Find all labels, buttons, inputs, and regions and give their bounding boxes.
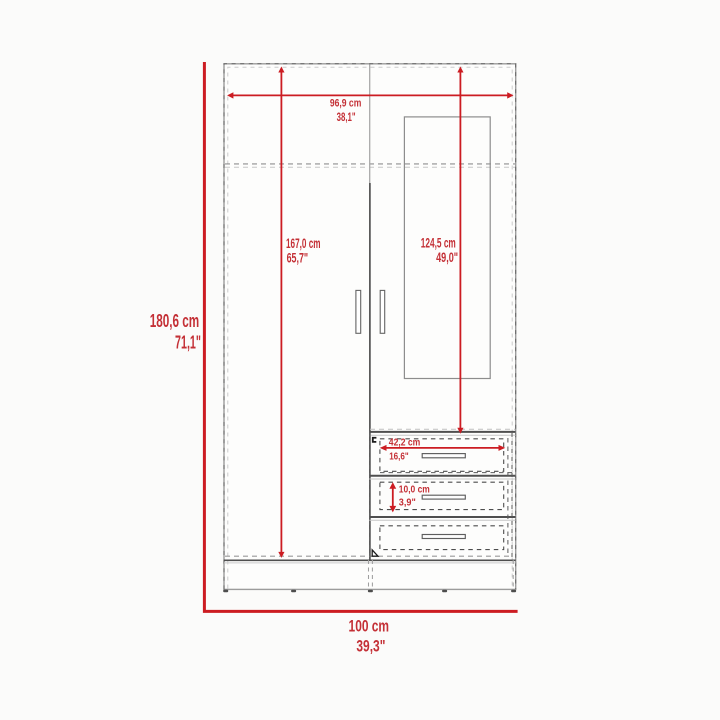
svg-text:96,9 cm: 96,9 cm bbox=[330, 98, 362, 110]
svg-text:16,6": 16,6" bbox=[389, 452, 409, 463]
svg-text:49,0": 49,0" bbox=[436, 250, 458, 265]
svg-text:167,0 cm: 167,0 cm bbox=[286, 236, 321, 251]
svg-text:100 cm: 100 cm bbox=[349, 617, 390, 636]
svg-text:65,7": 65,7" bbox=[287, 250, 309, 265]
svg-text:3,9": 3,9" bbox=[399, 498, 416, 509]
svg-text:10,0 cm: 10,0 cm bbox=[399, 485, 430, 496]
svg-text:38,1": 38,1" bbox=[337, 112, 356, 124]
svg-text:124,5 cm: 124,5 cm bbox=[421, 236, 456, 251]
svg-text:42,2 cm: 42,2 cm bbox=[389, 438, 421, 449]
svg-text:180,6 cm: 180,6 cm bbox=[150, 311, 200, 331]
svg-text:71,1": 71,1" bbox=[175, 333, 201, 353]
svg-text:39,3": 39,3" bbox=[356, 636, 385, 655]
